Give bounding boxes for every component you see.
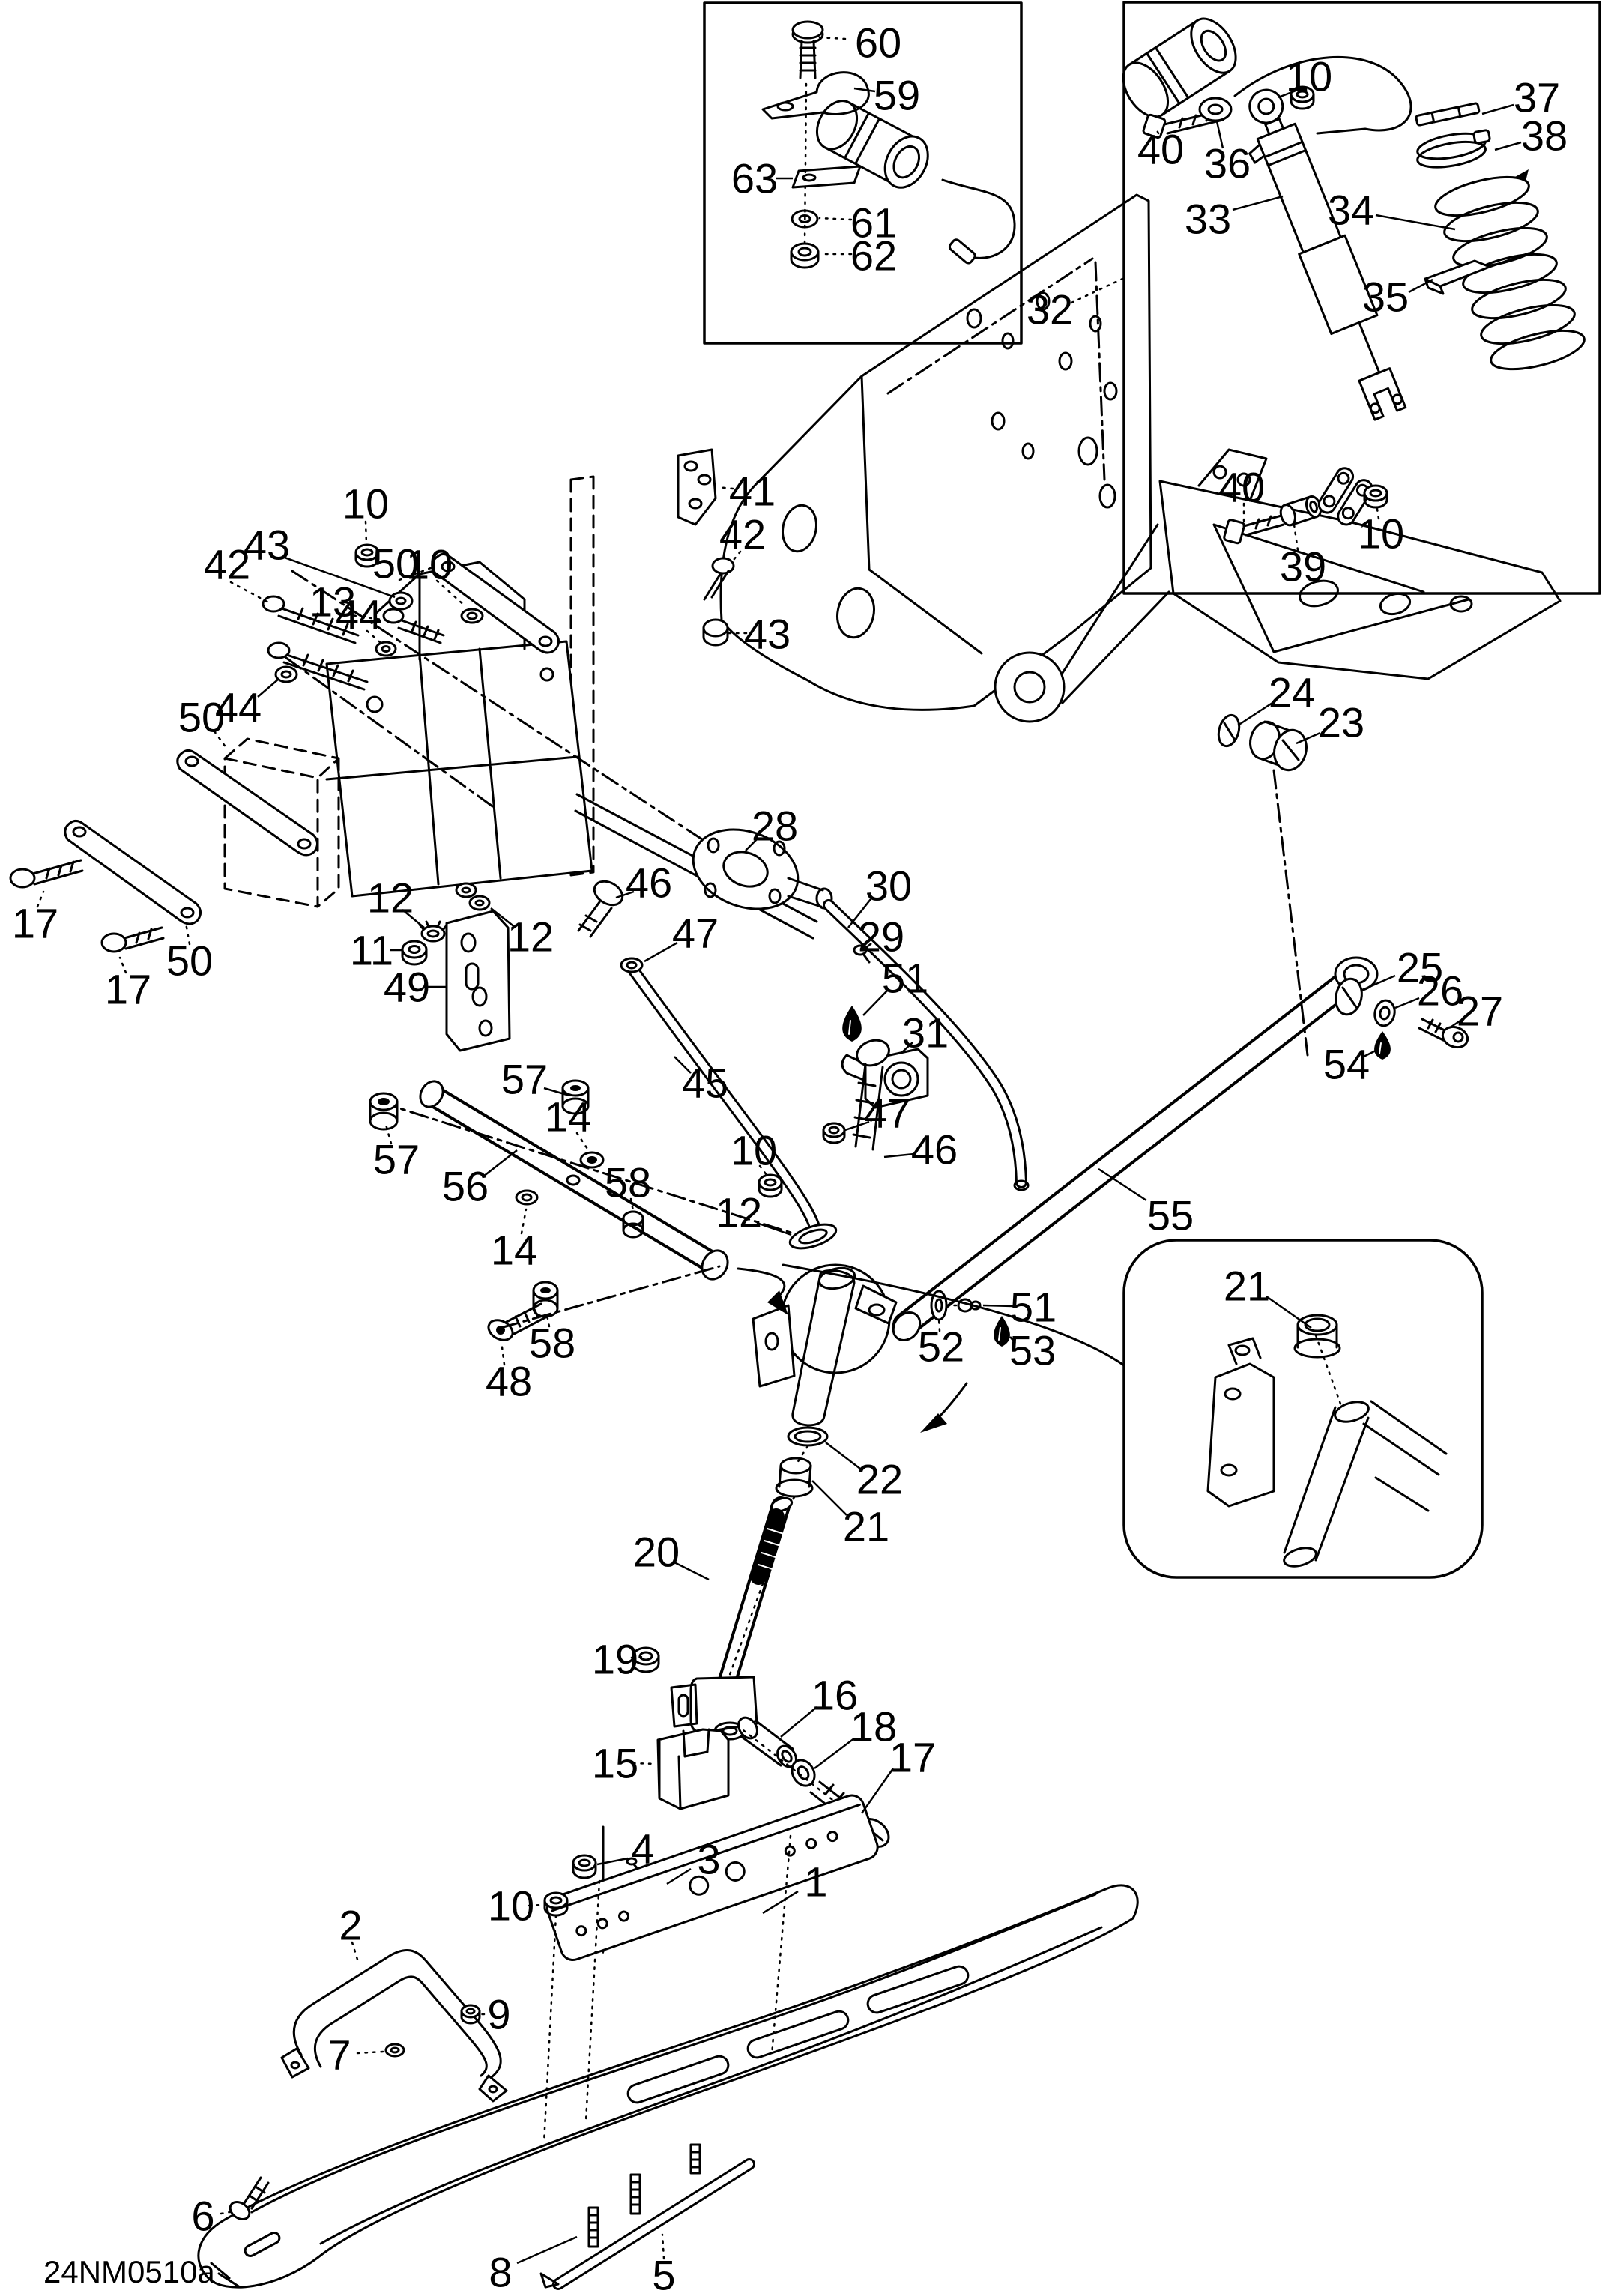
wear-bar-5: [541, 2145, 749, 2287]
callout-54-62: 54: [1323, 1041, 1370, 1088]
callout-62-4: 62: [850, 232, 897, 280]
callout-27-61: 27: [1457, 988, 1503, 1035]
callout-22-66: 22: [856, 1456, 903, 1503]
nut-47-lower: [823, 1123, 844, 1143]
callout-63-2: 63: [731, 155, 778, 202]
callout-35-13: 35: [1362, 274, 1409, 321]
callout-38-8: 38: [1521, 112, 1568, 160]
callout-59-1: 59: [874, 72, 920, 119]
callout-50-30: 50: [166, 937, 213, 985]
bolt-60: [793, 22, 823, 78]
callout-43-28: 43: [744, 611, 791, 658]
leader-line-51-64: [983, 1305, 1013, 1306]
callout-12-47: 12: [716, 1189, 762, 1236]
callout-48-55: 48: [486, 1358, 532, 1405]
leader-line-18-71: [814, 1738, 854, 1768]
callout-58-54: 58: [529, 1320, 575, 1367]
callout-34-12: 34: [1328, 187, 1374, 234]
leader-line-21-74: [1266, 1296, 1311, 1328]
leader-line-46-45: [884, 1154, 914, 1157]
callout-50-25: 50: [178, 694, 225, 741]
leader-line-26-60: [1395, 998, 1419, 1008]
callout-32-5: 32: [1027, 286, 1073, 333]
callout-4-75: 4: [631, 1825, 654, 1873]
callout-17-31: 17: [105, 966, 151, 1013]
diagram-canvas: 6059636162321037384036333435403910424310…: [0, 0, 1602, 2296]
nut-7: [386, 2044, 404, 2056]
callout-17-72: 17: [889, 1734, 936, 1781]
clamp-59: [763, 73, 868, 118]
callout-29-40: 29: [858, 913, 904, 961]
callout-40-14: 40: [1218, 464, 1265, 511]
callout-45-43: 45: [682, 1060, 728, 1107]
callout-7-81: 7: [327, 2031, 351, 2079]
callout-57-49: 57: [373, 1136, 420, 1183]
nut-9: [462, 2005, 480, 2023]
callout-12-32: 12: [367, 874, 414, 922]
callout-42-27: 42: [719, 511, 766, 558]
grease-drop-51-upper: [842, 1006, 862, 1042]
spindle-tube-inset: [1208, 1335, 1446, 1570]
spring-seat-35: [1425, 253, 1529, 294]
steering-post-20: [671, 1496, 794, 1739]
washer-14-lower: [516, 1191, 537, 1204]
spacer-58-lower: [534, 1282, 557, 1317]
clamp-38: [1414, 128, 1493, 172]
callout-6-82: 6: [191, 2193, 214, 2240]
callout-55-56: 55: [1147, 1192, 1194, 1239]
ski-handle-2: [282, 1950, 507, 2101]
callout-21-74: 21: [1224, 1263, 1270, 1310]
drawing-code: 24NM0510a: [43, 2254, 215, 2289]
callout-31-42: 31: [902, 1009, 949, 1057]
callout-47-44: 47: [864, 1090, 910, 1137]
callout-10-46: 10: [731, 1127, 777, 1174]
leader-line-37-7: [1482, 105, 1514, 114]
callout-28-35: 28: [752, 803, 798, 850]
leader-line-59-1: [854, 88, 875, 91]
callout-41-26: 41: [729, 468, 776, 515]
bolt-40-lower: [1224, 516, 1284, 544]
leader-line-7-81: [357, 2052, 384, 2053]
callout-12-37: 12: [507, 913, 554, 961]
spacer-16: [734, 1714, 800, 1770]
leader-line-1-77: [763, 1891, 798, 1913]
callout-1-77: 1: [804, 1858, 827, 1906]
diagram-page: 6059636162321037384036333435403910424310…: [0, 0, 1602, 2296]
callout-21-67: 21: [843, 1503, 889, 1550]
rod-37: [1415, 103, 1479, 125]
callout-44-23: 44: [336, 591, 382, 638]
leader-line-60-0: [818, 37, 845, 39]
callout-36-10: 36: [1204, 140, 1251, 187]
callout-51-64: 51: [1010, 1284, 1057, 1331]
leader-line-22-66: [826, 1442, 860, 1469]
callout-39-15: 39: [1280, 543, 1326, 590]
callout-14-52: 14: [491, 1227, 537, 1274]
callout-17-29: 17: [12, 900, 58, 947]
callout-20-68: 20: [633, 1529, 680, 1576]
callout-53-65: 53: [1009, 1327, 1056, 1374]
callout-43-18: 43: [244, 522, 290, 569]
washers-12-upper: [456, 883, 489, 910]
callout-2-79: 2: [339, 1902, 362, 1949]
callout-58-53: 58: [605, 1159, 651, 1206]
callout-10-78: 10: [488, 1882, 534, 1930]
callout-3-76: 3: [697, 1836, 720, 1883]
callout-10-21: 10: [406, 541, 453, 588]
callout-40-9: 40: [1137, 126, 1184, 173]
flange-nut-4: [573, 1855, 596, 1878]
callout-51-41: 51: [882, 955, 928, 1002]
washer-14-upper: [581, 1152, 603, 1167]
callout-19-69: 19: [592, 1636, 638, 1683]
leader-line-34-12: [1376, 215, 1455, 229]
callout-49-34: 49: [384, 964, 430, 1011]
callout-30-39: 30: [865, 862, 912, 910]
callout-15-73: 15: [592, 1740, 638, 1787]
callout-56-50: 56: [442, 1163, 489, 1210]
swing-arm-55: [888, 770, 1377, 1346]
leader-line-61-3: [820, 218, 851, 220]
callout-layer: 6059636162321037384036333435403910424310…: [12, 19, 1568, 2296]
leader-line-17-72: [862, 1768, 893, 1813]
callout-24-57: 24: [1269, 669, 1315, 716]
washer-36: [1200, 98, 1231, 121]
bolt-10-lower: [1364, 486, 1387, 507]
plate-63: [793, 166, 860, 187]
bolt-48: [485, 1266, 719, 1344]
stopper-block-15: [658, 1729, 728, 1809]
bushing-57-left: [370, 1093, 397, 1129]
callout-47-38: 47: [672, 910, 719, 957]
spindle-detail-inset-box: [1124, 1240, 1482, 1577]
line-art: [10, 2, 1600, 2287]
leader-line-33-11: [1233, 196, 1283, 210]
callout-60-0: 60: [855, 19, 901, 67]
leader-line-21-67: [812, 1481, 847, 1515]
callout-46-36: 46: [626, 860, 672, 907]
callout-23-58: 23: [1318, 699, 1364, 746]
washer-47-upper: [621, 958, 642, 972]
nut-62: [791, 244, 818, 268]
callout-10-16: 10: [1358, 510, 1404, 558]
callout-33-11: 33: [1185, 196, 1231, 243]
callout-5-84: 5: [652, 2252, 675, 2296]
callout-46-45: 46: [911, 1126, 958, 1173]
callout-52-63: 52: [918, 1323, 964, 1371]
nut-10-mid: [759, 1175, 782, 1197]
callout-8-83: 8: [489, 2249, 512, 2296]
tie-rod-end-46-upper: [578, 877, 626, 937]
leader-line-8-83: [517, 2237, 577, 2263]
callout-10-6: 10: [1286, 53, 1332, 100]
callout-14-51: 14: [545, 1093, 591, 1141]
spacer-58-upper: [623, 1212, 643, 1237]
leader-line-4-75: [597, 1858, 628, 1864]
leader-line-38-8: [1495, 142, 1521, 150]
leader-line-35-13: [1409, 280, 1433, 292]
callout-57-48: 57: [501, 1056, 548, 1103]
callout-9-80: 9: [487, 1991, 510, 2038]
callout-10-19: 10: [342, 480, 389, 528]
